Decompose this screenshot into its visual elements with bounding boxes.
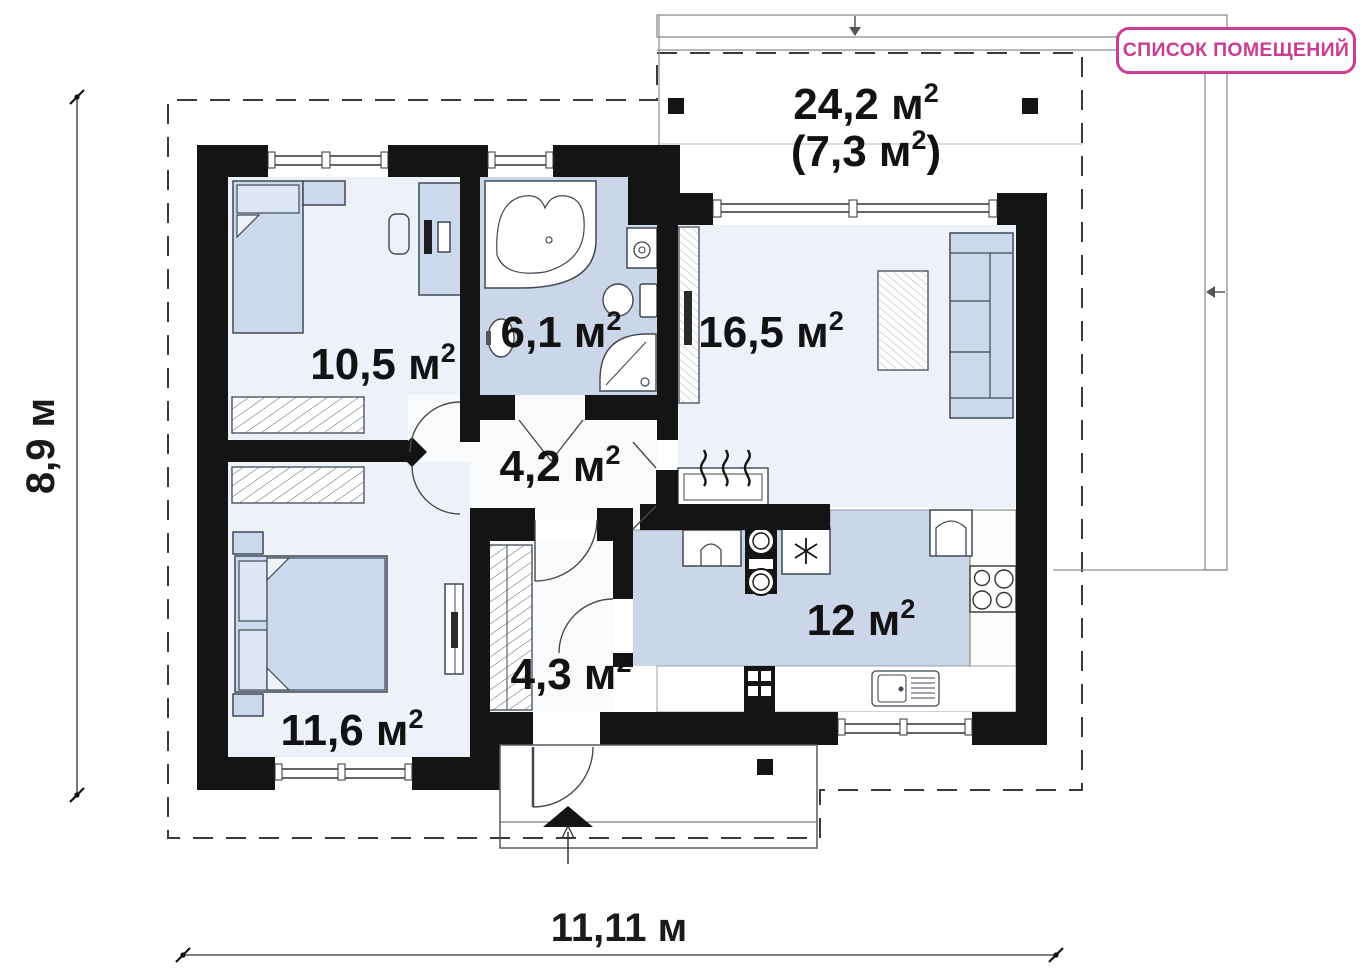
kitchen-area-label: 12 м2 — [807, 594, 916, 645]
wardrobe-icon — [232, 467, 364, 503]
window-living-terrace — [713, 193, 997, 225]
dimension-line-horizontal — [176, 948, 1063, 962]
entrance-hall-area-label: 4,3 м2 — [511, 648, 632, 699]
tv-unit-icon — [445, 584, 463, 674]
coffee-table-icon — [878, 271, 928, 370]
horizontal-dimension-label: 11,11 м — [551, 906, 687, 950]
window-bedroom2 — [275, 757, 412, 790]
floor-plan-drawing: 24,2 м2 (7,3 м2) 10,5 м2 6,1 м2 16,5 м2 … — [0, 0, 1372, 968]
sofa-icon — [950, 233, 1013, 418]
bedside-shelf-icon — [303, 181, 345, 205]
vertical-dimension-label: 8,9 м — [19, 398, 63, 494]
fridge-icon — [930, 510, 972, 556]
hallway-area-label: 4,2 м2 — [500, 440, 621, 491]
tv-stand-icon — [679, 227, 699, 403]
window-bathroom — [488, 145, 553, 177]
vent-shaft-icon — [744, 666, 775, 712]
terrace-secondary-area-label: (7,3 м2) — [791, 125, 941, 176]
double-bed-icon — [235, 556, 387, 692]
entrance-arrow-icon — [562, 826, 574, 864]
chair-icon — [389, 214, 409, 254]
washing-machine-icon — [627, 228, 657, 268]
nightstand-icon — [233, 694, 263, 716]
cabinet-icon — [683, 530, 741, 566]
entrance-marker-icon — [543, 806, 593, 827]
bedroom2-area-label: 11,6 м2 — [280, 704, 423, 755]
window-bedroom1 — [268, 145, 388, 177]
front-door — [533, 747, 593, 807]
bathtub-icon — [485, 181, 596, 288]
bathroom-area-label: 6,1 м2 — [501, 306, 622, 357]
dimension-line-vertical — [70, 90, 84, 802]
porch-post — [757, 759, 773, 775]
terrace-area-label: 24,2 м2 — [793, 78, 938, 129]
rooms-list-button[interactable]: СПИСОК ПОМЕЩЕНИЙ — [1116, 27, 1356, 74]
kitchen-sink-icon — [872, 671, 939, 706]
appliance-icon — [782, 528, 830, 574]
monitor-icon — [424, 220, 432, 254]
terrace-post — [668, 98, 684, 114]
terrace-post — [1022, 98, 1038, 114]
living-room-area-label: 16,5 м2 — [698, 306, 843, 357]
bedroom1-area-label: 10,5 м2 — [310, 338, 455, 389]
window-kitchen — [838, 712, 972, 745]
nightstand-icon — [233, 532, 263, 554]
floor-plan-page: 24,2 м2 (7,3 м2) 10,5 м2 6,1 м2 16,5 м2 … — [0, 0, 1372, 968]
stove-icon — [970, 566, 1016, 612]
pc-tower-icon — [438, 222, 450, 252]
wardrobe-icon — [232, 397, 364, 433]
